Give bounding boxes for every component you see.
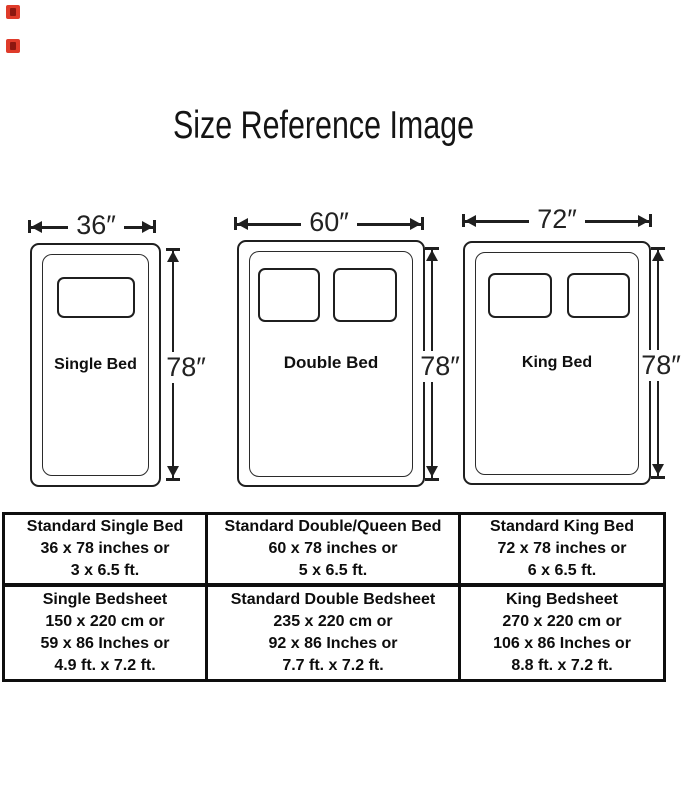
pillow: [333, 268, 397, 322]
bed-name-label: Double Bed: [249, 353, 413, 373]
size-reference-page: Size Reference Image 36″ Single Bed 78″ …: [0, 0, 683, 800]
width-dimension-label: 72″: [529, 204, 585, 235]
cell-single-bedsheet: Single Bedsheet 150 x 220 cm or 59 x 86 …: [5, 587, 208, 679]
cell-line: 7.7 ft. x 7.2 ft.: [282, 655, 383, 677]
arrowhead-up-icon: [652, 250, 664, 261]
cell-line: 59 x 86 Inches or: [41, 633, 170, 655]
cell-line: 235 x 220 cm or: [273, 611, 392, 633]
bed-name-label: King Bed: [475, 354, 639, 372]
cell-line: 8.8 ft. x 7.2 ft.: [511, 655, 612, 677]
pillow: [567, 273, 630, 318]
cell-line: 60 x 78 inches or: [269, 538, 398, 560]
cell-line: 36 x 78 inches or: [41, 538, 170, 560]
cell-line: 270 x 220 cm or: [502, 611, 621, 633]
width-dimension-label: 60″: [301, 207, 357, 238]
arrow-end-bar: [166, 478, 180, 481]
arrowhead-left-icon: [465, 215, 476, 227]
arrow-end-bar: [651, 476, 665, 479]
cell-line: 5 x 6.5 ft.: [299, 560, 367, 582]
cell-standard-single-bed: Standard Single Bed 36 x 78 inches or 3 …: [5, 515, 208, 587]
height-dimension-label: 78″: [418, 351, 462, 382]
arrowhead-right-icon: [638, 215, 649, 227]
cell-line: King Bedsheet: [506, 589, 618, 611]
cell-standard-double-queen-bed: Standard Double/Queen Bed 60 x 78 inches…: [208, 515, 461, 587]
cell-line: 3 x 6.5 ft.: [71, 560, 139, 582]
cell-line: 4.9 ft. x 7.2 ft.: [54, 655, 155, 677]
red-marker-glyph: [10, 8, 16, 16]
cell-standard-double-bedsheet: Standard Double Bedsheet 235 x 220 cm or…: [208, 587, 461, 679]
arrow-end-bar: [425, 478, 439, 481]
arrowhead-up-icon: [426, 250, 438, 261]
cell-king-bedsheet: King Bedsheet 270 x 220 cm or 106 x 86 I…: [461, 587, 663, 679]
cell-line: Single Bedsheet: [43, 589, 167, 611]
height-dimension-label: 78″: [164, 352, 208, 383]
width-dimension-label: 36″: [68, 210, 124, 241]
cell-line: Standard Double Bedsheet: [231, 589, 435, 611]
cell-line: 72 x 78 inches or: [498, 538, 627, 560]
arrowhead-down-icon: [426, 466, 438, 477]
arrowhead-down-icon: [167, 466, 179, 477]
bed-name-label: Single Bed: [42, 356, 149, 374]
cell-line: 6 x 6.5 ft.: [528, 560, 596, 582]
height-dimension-label: 78″: [640, 350, 682, 381]
red-marker-icon: [6, 5, 20, 19]
red-marker-icon: [6, 39, 20, 53]
size-table: Standard Single Bed 36 x 78 inches or 3 …: [2, 512, 666, 682]
cell-line: Standard King Bed: [490, 516, 634, 538]
cell-standard-king-bed: Standard King Bed 72 x 78 inches or 6 x …: [461, 515, 663, 587]
cell-line: Standard Single Bed: [27, 516, 183, 538]
cell-line: 92 x 86 Inches or: [269, 633, 398, 655]
pillow: [57, 277, 135, 318]
cell-line: Standard Double/Queen Bed: [225, 516, 442, 538]
pillow: [258, 268, 320, 322]
pillow: [488, 273, 552, 318]
arrowhead-left-icon: [31, 221, 42, 233]
arrowhead-up-icon: [167, 251, 179, 262]
cell-line: 106 x 86 Inches or: [493, 633, 631, 655]
arrowhead-left-icon: [237, 218, 248, 230]
red-marker-glyph: [10, 42, 16, 50]
arrowhead-right-icon: [410, 218, 421, 230]
arrowhead-right-icon: [142, 221, 153, 233]
arrowhead-down-icon: [652, 464, 664, 475]
cell-line: 150 x 220 cm or: [45, 611, 164, 633]
page-title: Size Reference Image: [71, 104, 576, 148]
